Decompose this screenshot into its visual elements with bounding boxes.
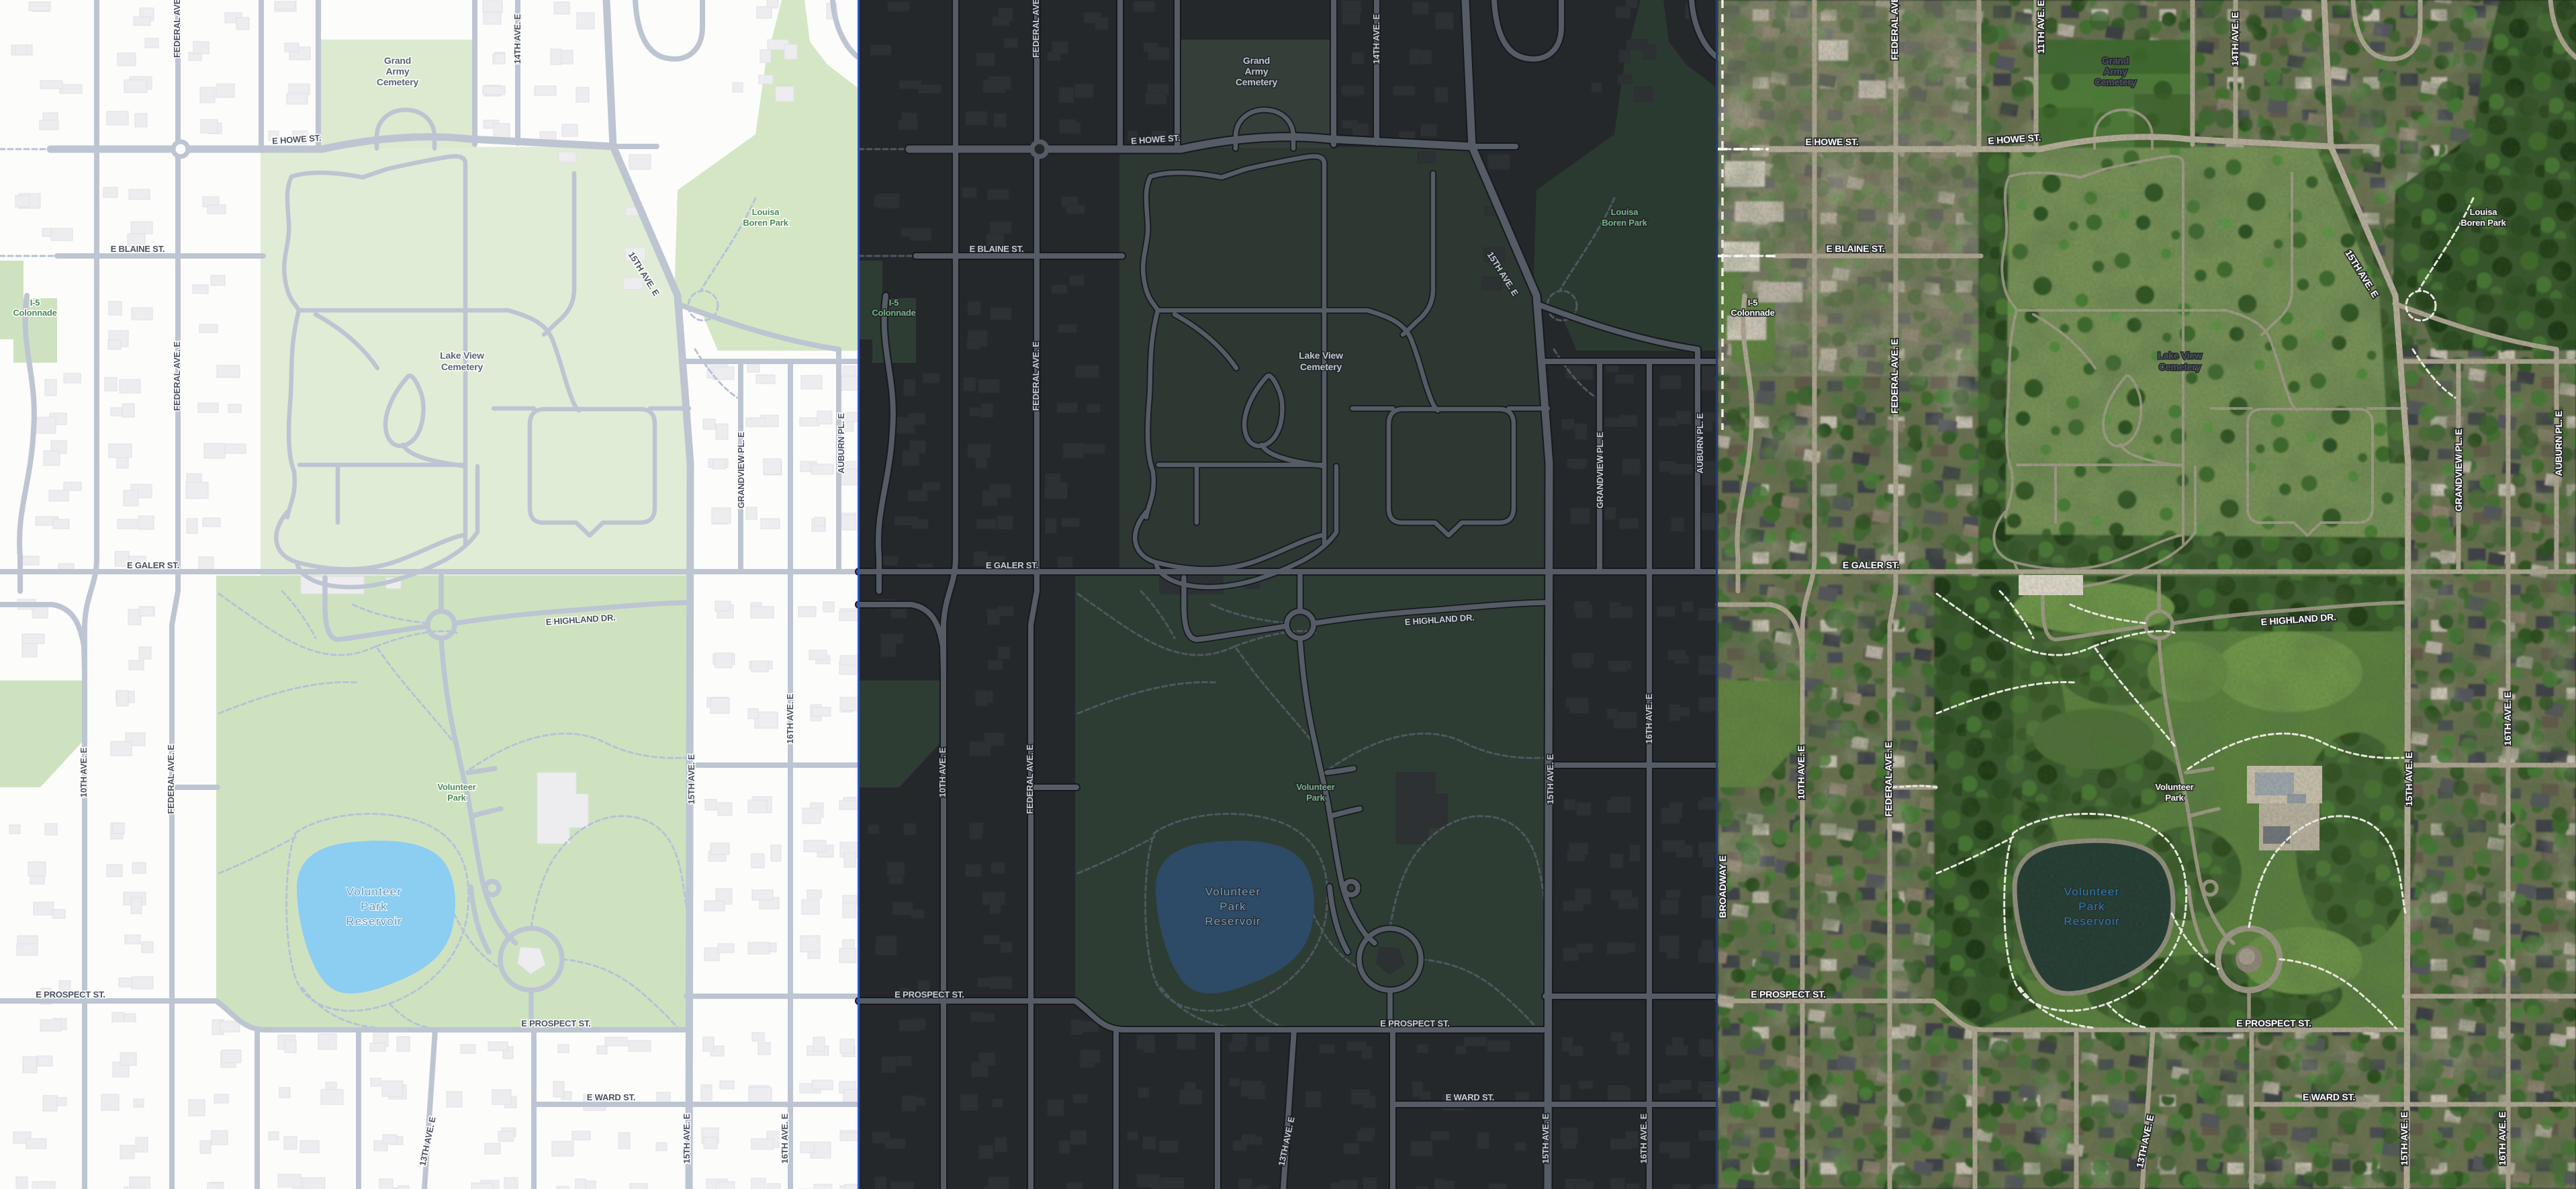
svg-text:BROADWAY E: BROADWAY E <box>1717 856 1728 918</box>
svg-text:11TH AVE. E: 11TH AVE. E <box>2035 0 2046 54</box>
svg-text:E HOWE ST.: E HOWE ST. <box>1806 136 1859 147</box>
